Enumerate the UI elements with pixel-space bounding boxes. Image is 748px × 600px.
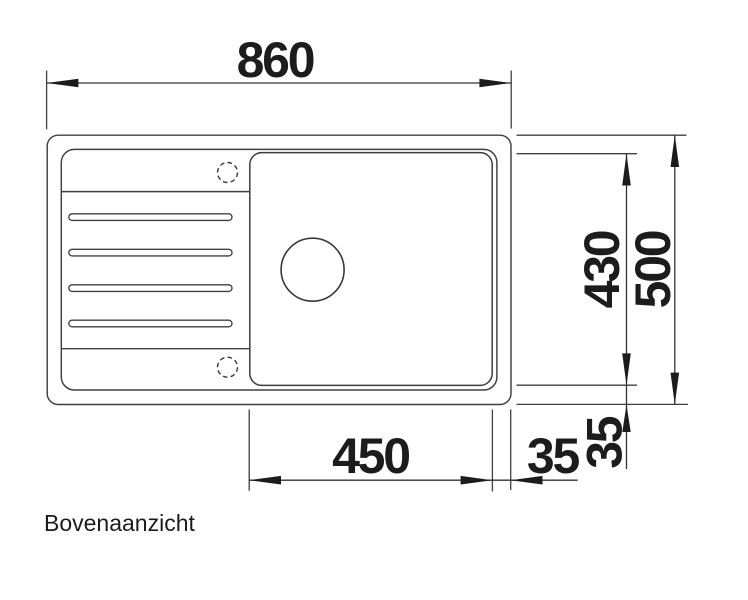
- svg-text:35: 35: [576, 416, 632, 469]
- svg-text:860: 860: [237, 32, 314, 88]
- svg-text:35: 35: [527, 428, 580, 484]
- svg-text:430: 430: [574, 231, 630, 308]
- svg-text:Bovenaanzicht: Bovenaanzicht: [44, 510, 195, 536]
- svg-text:450: 450: [332, 428, 409, 484]
- svg-text:500: 500: [625, 231, 681, 308]
